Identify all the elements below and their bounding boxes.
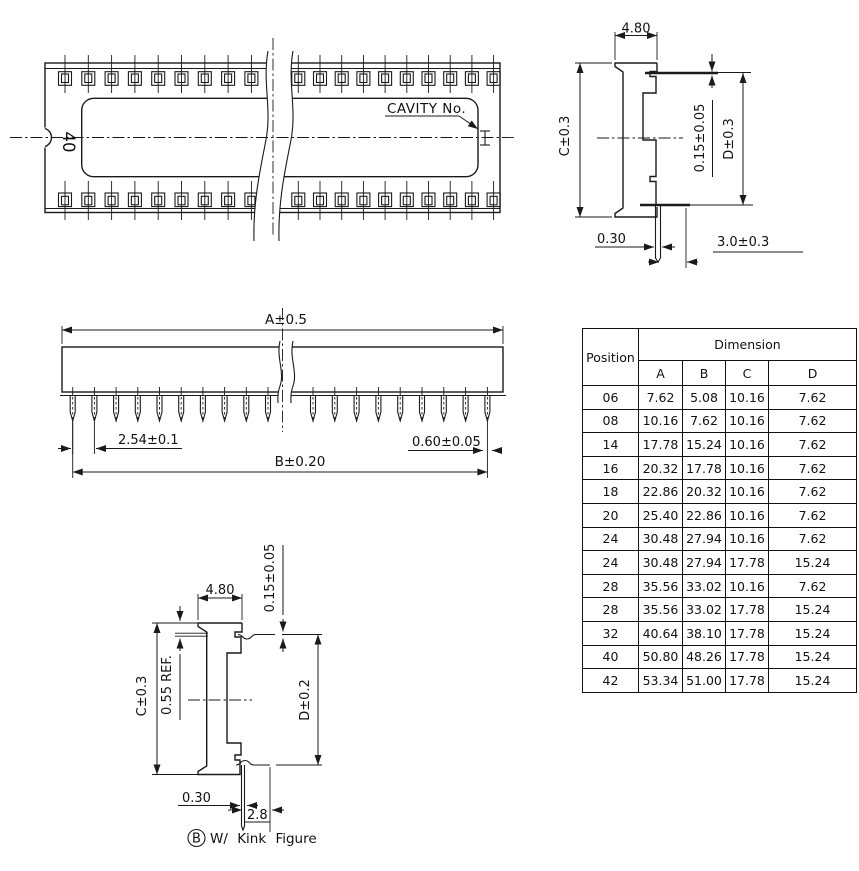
dimension-cell-c: 10.16 <box>726 409 769 433</box>
column-header-d: D <box>769 361 857 386</box>
dimension-cell-c: 10.16 <box>726 480 769 504</box>
dimension-cell-a: 25.40 <box>639 503 683 527</box>
dimension-cell-c: 10.16 <box>726 386 769 410</box>
dimension-cell-b: 17.78 <box>683 456 726 480</box>
end-view-drawing: 4.80 C±0.3 0.15±0.05 D±0.3 0.30 3.0± <box>555 10 855 290</box>
bottom-kink-lead <box>236 761 270 766</box>
dim-seating-d: D±0.2 <box>298 635 318 766</box>
dimension-cell-c: 17.78 <box>726 598 769 622</box>
dim-width-4-80: 4.80 <box>615 22 657 61</box>
socket-contact-top <box>314 55 327 93</box>
socket-contact-bottom <box>314 181 327 220</box>
socket-contact-bottom <box>105 181 118 220</box>
dimension-cell-b: 7.62 <box>683 409 726 433</box>
dimension-row: 3240.6438.1017.7815.24 <box>583 621 857 645</box>
column-header-a: A <box>639 361 683 386</box>
socket-contact-top <box>59 55 72 93</box>
position-header: Position <box>583 329 639 386</box>
socket-contact-bottom <box>59 181 72 220</box>
dimension-cell-d: 15.24 <box>769 598 857 622</box>
socket-contact-bottom <box>357 181 370 220</box>
dimension-cell-position: 16 <box>583 456 639 480</box>
dim-lip-label: 0.55 REF. <box>160 655 175 715</box>
socket-contact-top <box>198 55 211 93</box>
socket-contact-top <box>335 55 348 93</box>
dimension-cell-position: 20 <box>583 503 639 527</box>
cavity-number-mark <box>480 131 490 145</box>
dimension-cell-position: 40 <box>583 645 639 669</box>
socket-contact-top <box>379 55 392 93</box>
dim-standoff-label: 0.15±0.05 <box>263 544 278 613</box>
top-kink-lead <box>238 635 275 640</box>
dimension-cell-b: 20.32 <box>683 480 726 504</box>
pitch-view-drawing: A±0.5 2.54±0.1 0.60±0.05 B±0.20 <box>30 300 515 505</box>
dimension-row: 1417.7815.2410.167.62 <box>583 433 857 457</box>
dim-kink-length: 2.8 <box>228 767 284 832</box>
dimension-cell-a: 40.64 <box>639 621 683 645</box>
socket-contact-bottom <box>444 181 457 220</box>
socket-contact-top <box>82 55 95 93</box>
dim-lead-thickness-label: 0.30 <box>182 791 211 806</box>
dimension-cell-c: 17.78 <box>726 669 769 693</box>
dimension-cell-c: 10.16 <box>726 574 769 598</box>
cavity-label: CAVITY No. <box>387 101 466 117</box>
kink-view-drawing: 4.80 0.15±0.05 C±0.3 0.55 REF. D±0.2 0.3… <box>100 530 380 865</box>
dimension-cell-a: 53.34 <box>639 669 683 693</box>
dimension-cell-a: 35.56 <box>639 598 683 622</box>
dim-a-label: A±0.5 <box>265 312 307 328</box>
break-lines <box>278 341 295 403</box>
dimension-cell-b: 48.26 <box>683 645 726 669</box>
dimension-cell-d: 15.24 <box>769 551 857 575</box>
socket-contact-bottom <box>152 181 165 220</box>
dimension-cell-a: 7.62 <box>639 386 683 410</box>
dimension-cell-c: 10.16 <box>726 433 769 457</box>
cavity-number-callout: CAVITY No. <box>385 101 490 145</box>
dimension-cell-position: 28 <box>583 598 639 622</box>
dimension-cell-d: 15.24 <box>769 669 857 693</box>
dimension-row: 2430.4827.9417.7815.24 <box>583 551 857 575</box>
dimension-cell-a: 30.48 <box>639 527 683 551</box>
dimension-cell-b: 51.00 <box>683 669 726 693</box>
dimension-cell-a: 50.80 <box>639 645 683 669</box>
dimension-cell-b: 5.08 <box>683 386 726 410</box>
dim-tail-label: 3.0±0.3 <box>717 235 769 250</box>
dimension-row: 2835.5633.0210.167.62 <box>583 574 857 598</box>
dim-pitch: 2.54±0.1 <box>58 422 182 454</box>
dimension-row: 2430.4827.9410.167.62 <box>583 527 857 551</box>
dimension-cell-c: 17.78 <box>726 621 769 645</box>
dimension-cell-a: 17.78 <box>639 433 683 457</box>
dim-lead-width: 0.60±0.05 <box>408 435 502 451</box>
dimension-header: Dimension <box>639 329 857 361</box>
dimension-cell-position: 32 <box>583 621 639 645</box>
dim-width-label: 4.80 <box>206 583 235 598</box>
socket-contact-bottom <box>400 181 413 220</box>
dim-lead-thickness-label: 0.30 <box>597 232 626 247</box>
dimension-cell-b: 15.24 <box>683 433 726 457</box>
socket-contact-top <box>465 55 478 93</box>
dimension-cell-d: 7.62 <box>769 456 857 480</box>
dim-kink-label: 2.8 <box>247 808 268 823</box>
solder-pin <box>656 205 661 262</box>
dim-standoff: 0.15±0.05 <box>263 544 283 652</box>
dimension-cell-position: 42 <box>583 669 639 693</box>
dim-standoff-label: 0.15±0.05 <box>693 104 708 173</box>
dimension-cell-position: 06 <box>583 386 639 410</box>
dimension-cell-position: 24 <box>583 551 639 575</box>
socket-contact-top <box>292 55 305 93</box>
dimension-table: Position Dimension A B C D 067.625.0810.… <box>582 328 857 693</box>
dimension-cell-b: 38.10 <box>683 621 726 645</box>
dimension-cell-b: 33.02 <box>683 598 726 622</box>
dim-height-label: C±0.3 <box>135 676 150 717</box>
socket-contact-top <box>152 55 165 93</box>
dimension-cell-b: 22.86 <box>683 503 726 527</box>
dimension-row: 2835.5633.0217.7815.24 <box>583 598 857 622</box>
dimension-cell-position: 24 <box>583 527 639 551</box>
dimension-cell-d: 15.24 <box>769 621 857 645</box>
socket-contact-top <box>357 55 370 93</box>
dim-seating-d: D±0.3 <box>722 73 743 205</box>
dimension-cell-a: 10.16 <box>639 409 683 433</box>
dimension-cell-d: 7.62 <box>769 433 857 457</box>
dimension-cell-d: 7.62 <box>769 386 857 410</box>
dim-height-c: C±0.3 <box>558 63 612 217</box>
dim-lead-thickness: 0.30 <box>178 791 258 806</box>
dimension-cell-d: 7.62 <box>769 527 857 551</box>
dim-height-label: C±0.3 <box>558 116 573 157</box>
column-header-b: B <box>683 361 726 386</box>
socket-contact-top <box>105 55 118 93</box>
dimension-cell-a: 22.86 <box>639 480 683 504</box>
dim-b-label: B±0.20 <box>275 454 326 470</box>
dimension-cell-d: 15.24 <box>769 645 857 669</box>
dim-lead-thickness: 0.30 <box>595 232 675 247</box>
engineering-drawing-sheet: 40 CAVITY No. <box>0 0 859 871</box>
dimension-cell-a: 20.32 <box>639 456 683 480</box>
socket-contact-top <box>444 55 457 93</box>
dimension-cell-a: 35.56 <box>639 574 683 598</box>
dimension-cell-d: 7.62 <box>769 574 857 598</box>
dimension-cell-c: 17.78 <box>726 645 769 669</box>
socket-contact-bottom <box>222 181 235 220</box>
dimension-table-wrap: Position Dimension A B C D 067.625.0810.… <box>582 328 857 693</box>
socket-contact-top <box>400 55 413 93</box>
socket-contact-bottom <box>292 181 305 220</box>
column-header-c: C <box>726 361 769 386</box>
dimension-cell-d: 7.62 <box>769 480 857 504</box>
socket-contact-top <box>128 55 141 93</box>
pin-count-label: 40 <box>59 132 78 153</box>
dimension-row: 4253.3451.0017.7815.24 <box>583 669 857 693</box>
socket-contact-bottom <box>465 181 478 220</box>
socket-contact-top <box>487 55 500 93</box>
dim-lead-width-label: 0.60±0.05 <box>412 435 481 450</box>
dimension-cell-b: 33.02 <box>683 574 726 598</box>
dimension-row: 1822.8620.3210.167.62 <box>583 480 857 504</box>
top-view-drawing: 40 CAVITY No. <box>10 15 525 270</box>
dim-tail-length: 3.0±0.3 <box>648 208 803 268</box>
dimension-row: 1620.3217.7810.167.62 <box>583 456 857 480</box>
socket-contact-bottom <box>198 181 211 220</box>
dim-width-label: 4.80 <box>622 22 651 37</box>
dim-width-4-80: 4.80 <box>198 583 242 620</box>
dimension-cell-d: 7.62 <box>769 409 857 433</box>
caption-marker-letter: B <box>192 832 201 847</box>
dimension-cell-c: 10.16 <box>726 503 769 527</box>
dimension-cell-position: 28 <box>583 574 639 598</box>
caption-text: W/ Kink Figure <box>210 831 317 847</box>
socket-contact-top <box>175 55 188 93</box>
dimension-cell-d: 7.62 <box>769 503 857 527</box>
dimension-cell-b: 27.94 <box>683 551 726 575</box>
dimension-row: 067.625.0810.167.62 <box>583 386 857 410</box>
socket-contact-bottom <box>379 181 392 220</box>
socket-contact-top <box>222 55 235 93</box>
dimension-row: 0810.167.6210.167.62 <box>583 409 857 433</box>
dimension-row: 4050.8048.2617.7815.24 <box>583 645 857 669</box>
dimension-row: 2025.4022.8610.167.62 <box>583 503 857 527</box>
dimension-cell-position: 08 <box>583 409 639 433</box>
socket-contact-bottom <box>128 181 141 220</box>
solder-pin <box>242 765 245 830</box>
dimension-cell-c: 10.16 <box>726 456 769 480</box>
dimension-cell-c: 17.78 <box>726 551 769 575</box>
dim-seating-label: D±0.3 <box>722 118 737 160</box>
dimension-cell-b: 27.94 <box>683 527 726 551</box>
dimension-cell-c: 10.16 <box>726 527 769 551</box>
socket-contact-top <box>245 55 258 93</box>
dimension-cell-position: 18 <box>583 480 639 504</box>
dimension-cell-position: 14 <box>583 433 639 457</box>
socket-contact-bottom <box>487 181 500 220</box>
dim-seating-label: D±0.2 <box>298 679 313 721</box>
socket-contact-bottom <box>335 181 348 220</box>
socket-contact-bottom <box>82 181 95 220</box>
kink-caption: B W/ Kink Figure <box>188 830 317 848</box>
socket-contact-bottom <box>175 181 188 220</box>
socket-contact-bottom <box>422 181 435 220</box>
socket-contact-top <box>422 55 435 93</box>
dimension-cell-a: 30.48 <box>639 551 683 575</box>
dim-pitch-label: 2.54±0.1 <box>118 433 179 448</box>
